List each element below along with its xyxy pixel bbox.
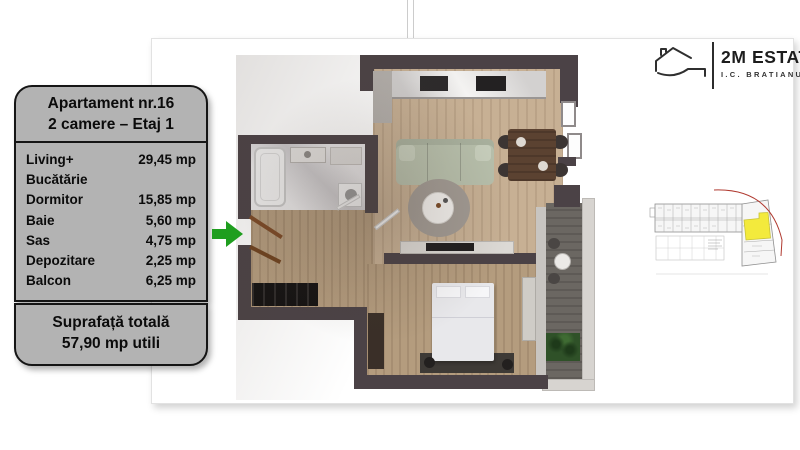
house-outline-icon bbox=[650, 42, 710, 86]
pillow bbox=[465, 286, 490, 298]
sofa-cushion-seam bbox=[427, 143, 428, 182]
logo-subtitle: I.C. BRATIANU bbox=[721, 70, 800, 79]
logo-title: 2M ESTATE bbox=[721, 47, 800, 68]
pouf bbox=[502, 359, 513, 370]
storey-plan-thumbnail bbox=[648, 186, 792, 290]
total-area-box: Suprafață totală 57,90 mp utili bbox=[14, 303, 208, 366]
pillow bbox=[436, 286, 461, 298]
balcony-chair bbox=[548, 238, 560, 249]
wall bbox=[354, 375, 548, 389]
plate bbox=[538, 161, 548, 171]
table-decor bbox=[436, 203, 441, 208]
storage-shelves bbox=[252, 283, 318, 306]
apartment-title: Apartament nr.16 2 camere – Etaj 1 bbox=[16, 87, 206, 143]
room-area: 4,75 mp bbox=[146, 231, 196, 251]
pouf bbox=[424, 357, 435, 368]
dresser bbox=[522, 277, 536, 341]
balcony-chair bbox=[548, 273, 560, 284]
wall bbox=[360, 55, 578, 69]
balcony-railing bbox=[542, 379, 595, 391]
wardrobe bbox=[368, 313, 384, 369]
room-list: Living+ Bucătărie 29,45 mp Dormitor 15,8… bbox=[16, 143, 206, 300]
bathtub bbox=[254, 147, 286, 207]
cooktop bbox=[476, 76, 506, 91]
kitchen-counter bbox=[392, 71, 546, 99]
connector-line bbox=[407, 0, 414, 38]
wall bbox=[238, 135, 251, 219]
sink-basin bbox=[304, 151, 311, 158]
apartment-details-box: Apartament nr.16 2 camere – Etaj 1 Livin… bbox=[14, 85, 208, 302]
balcony-table bbox=[554, 253, 571, 270]
room-row: Living+ Bucătărie 29,45 mp bbox=[26, 150, 196, 191]
window bbox=[567, 133, 582, 159]
room-label-line2: Bucătărie bbox=[26, 170, 88, 190]
room-label: Balcon bbox=[26, 271, 71, 291]
room-row: Depozitare 2,25 mp bbox=[26, 251, 196, 271]
agency-logo: 2M ESTATE I.C. BRATIANU bbox=[650, 42, 792, 90]
building-floor-plan-thumbnail bbox=[648, 186, 792, 290]
table-decor bbox=[443, 198, 448, 203]
duvet-fold bbox=[432, 317, 494, 318]
green-arrow-right-icon bbox=[226, 221, 243, 247]
wall bbox=[238, 307, 366, 320]
kitchen-cabinet bbox=[373, 71, 392, 123]
kitchen-sink bbox=[420, 76, 448, 91]
tv bbox=[426, 243, 474, 251]
dining-table bbox=[508, 129, 556, 181]
entrance-arrow bbox=[212, 221, 243, 247]
room-label: Sas bbox=[26, 231, 50, 251]
room-label: Depozitare bbox=[26, 251, 95, 271]
green-arrow-right-icon bbox=[212, 229, 226, 239]
slide: Apartament nr.16 2 camere – Etaj 1 Livin… bbox=[0, 0, 800, 450]
balcony-sliding-door bbox=[536, 207, 546, 375]
room-row: Sas 4,75 mp bbox=[26, 231, 196, 251]
room-label: Living+ Bucătărie bbox=[26, 150, 88, 191]
bed bbox=[432, 283, 494, 361]
room-area: 5,60 mp bbox=[146, 211, 196, 231]
apartment-title-line2: 2 camere – Etaj 1 bbox=[18, 114, 204, 135]
wall bbox=[238, 135, 378, 144]
room-label: Baie bbox=[26, 211, 55, 231]
floor-plan-render bbox=[236, 55, 608, 400]
room-label-line1: Living+ bbox=[26, 150, 88, 170]
room-row: Baie 5,60 mp bbox=[26, 211, 196, 231]
room-area: 15,85 mp bbox=[138, 190, 196, 210]
shower bbox=[330, 147, 362, 165]
apartment-info-panel: Apartament nr.16 2 camere – Etaj 1 Livin… bbox=[14, 85, 208, 366]
planter-plants bbox=[546, 333, 580, 361]
total-area-line1: Suprafață totală bbox=[20, 312, 202, 334]
logo-divider bbox=[712, 42, 714, 89]
room-row: Dormitor 15,85 mp bbox=[26, 190, 196, 210]
parking-lines bbox=[656, 236, 724, 260]
total-area-line2: 57,90 mp utili bbox=[20, 333, 202, 355]
plate bbox=[516, 137, 526, 147]
wall bbox=[365, 135, 378, 213]
wall bbox=[360, 55, 374, 91]
room-row: Balcon 6,25 mp bbox=[26, 271, 196, 291]
room-label: Dormitor bbox=[26, 190, 83, 210]
apartment-title-line1: Apartament nr.16 bbox=[18, 93, 204, 114]
legend-text-lines bbox=[708, 240, 722, 249]
bathtub-rim bbox=[260, 153, 280, 201]
room-area: 6,25 mp bbox=[146, 271, 196, 291]
window bbox=[561, 101, 576, 127]
sofa-pillow bbox=[475, 145, 491, 161]
logo-text: 2M ESTATE I.C. BRATIANU bbox=[721, 47, 800, 79]
sofa-pillow bbox=[399, 145, 415, 161]
balcony-railing bbox=[582, 198, 595, 390]
room-area: 29,45 mp bbox=[138, 150, 196, 191]
sofa-cushion-seam bbox=[460, 143, 461, 182]
wall bbox=[384, 253, 540, 264]
sofa bbox=[396, 139, 494, 185]
coffee-table bbox=[422, 192, 454, 224]
room-area: 2,25 mp bbox=[146, 251, 196, 271]
stair-block bbox=[650, 208, 655, 217]
wall bbox=[554, 185, 580, 207]
